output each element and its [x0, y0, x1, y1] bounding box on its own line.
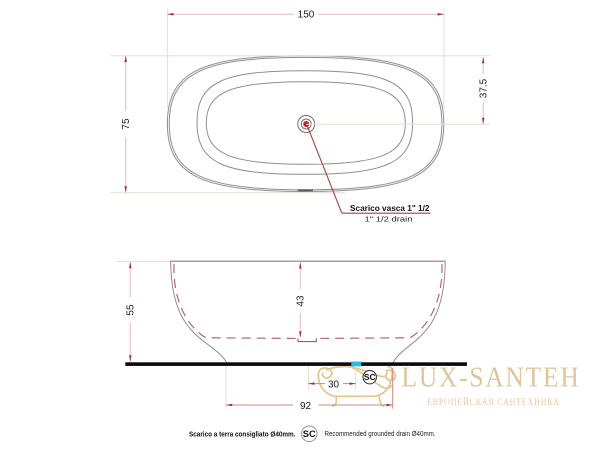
svg-text:37.5: 37.5 [479, 78, 490, 98]
svg-text:SC: SC [364, 372, 376, 382]
svg-text:ЕВРОПЕЙСКАЯ САНТЕХНИКА: ЕВРОПЕЙСКАЯ САНТЕХНИКА [427, 396, 560, 408]
svg-text:92: 92 [300, 401, 312, 412]
svg-text:1" 1/2 drain: 1" 1/2 drain [365, 215, 413, 224]
svg-text:30: 30 [328, 379, 340, 390]
svg-text:Scarico a terra consigliato Ø4: Scarico a terra consigliato Ø40mm. [189, 430, 296, 439]
svg-text:Scarico vasca 1" 1/2: Scarico vasca 1" 1/2 [350, 204, 430, 213]
svg-text:75: 75 [121, 118, 132, 130]
svg-text:55: 55 [126, 304, 137, 316]
svg-text:Recommended grounded drain Ø40: Recommended grounded drain Ø40mm. [325, 431, 436, 438]
svg-text:LUX-SANTEH: LUX-SANTEH [402, 363, 581, 394]
svg-text:SC: SC [303, 428, 316, 439]
svg-text:43: 43 [296, 295, 307, 307]
svg-text:150: 150 [298, 9, 315, 20]
